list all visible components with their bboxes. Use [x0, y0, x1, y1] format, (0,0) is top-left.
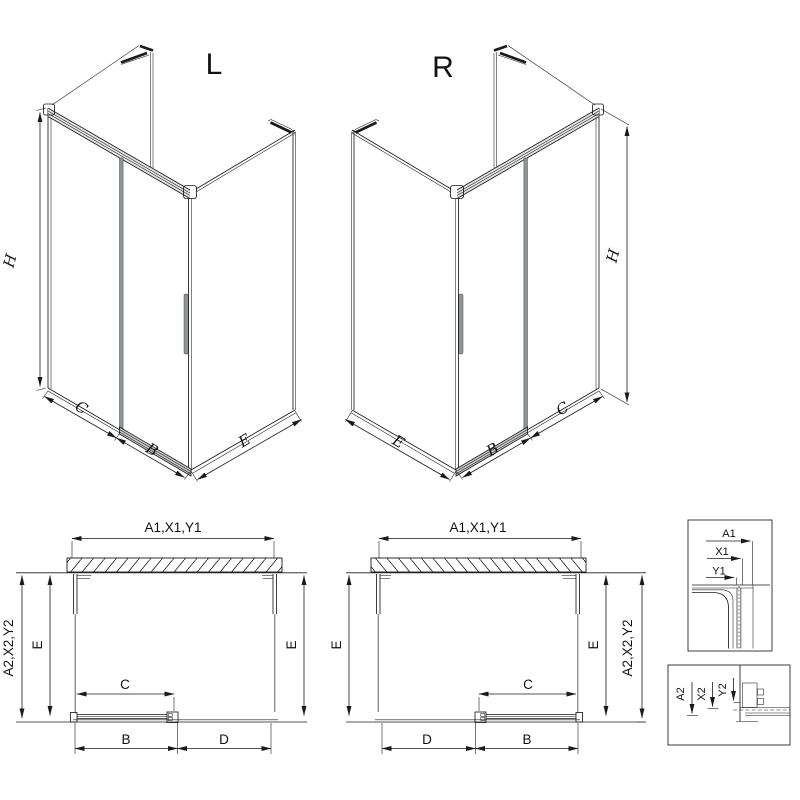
detail-label-a2: A2 — [675, 687, 687, 700]
plan-view-right: A1,X1,Y1 E E A2,X2,Y2 C D B — [329, 520, 646, 754]
plan-left-dim-a2: A2,X2,Y2 — [1, 576, 22, 719]
dim-label-h: H — [0, 251, 21, 270]
dim-label-c: C — [72, 397, 91, 419]
dim-label-e: E — [30, 640, 45, 649]
dim-label-d: D — [219, 732, 229, 747]
dim-label-a1x1y1: A1,X1,Y1 — [449, 520, 506, 535]
plan-left-dim-a1: A1,X1,Y1 — [72, 520, 274, 558]
plan-left-dim-b-d: B D — [75, 723, 271, 754]
plan-left-dim-e-right: E — [284, 576, 304, 716]
iso-view-right: R H E B C — [346, 46, 630, 482]
dim-label-b: B — [522, 732, 531, 747]
plan-right-dim-e-right: E — [586, 576, 606, 716]
detail-label-a1: A1 — [722, 528, 735, 540]
iso-right-h-dimension: H — [601, 109, 629, 405]
iso-view-left: L H C B E — [0, 46, 301, 482]
plan-right-dim-a1: A1,X1,Y1 — [379, 520, 581, 558]
dim-label-e: E — [586, 640, 601, 649]
dim-label-c: C — [120, 677, 130, 692]
dim-label-b: B — [121, 732, 130, 747]
dim-label-a2x2y2: A2,X2,Y2 — [620, 619, 635, 676]
dim-label-a2x2y2: A2,X2,Y2 — [1, 619, 16, 676]
plan-left-dim-c: C — [77, 677, 174, 711]
technical-drawing-canvas: L H C B E R H E B C A1,X1,Y1 — [0, 0, 800, 800]
dim-label-d: D — [422, 732, 432, 747]
dim-label-c: C — [523, 677, 533, 692]
dim-label-a1x1y1: A1,X1,Y1 — [144, 520, 201, 535]
plan-left-dim-e-left: E — [30, 576, 50, 716]
dim-label-e: E — [329, 640, 344, 649]
detail-box-bottom: A2 X2 Y2 — [668, 665, 790, 745]
plan-right-dim-a2: A2,X2,Y2 — [620, 576, 642, 719]
plan-view-left: A1,X1,Y1 A2,X2,Y2 E E C B D — [1, 520, 307, 754]
plan-right-dim-c: C — [479, 677, 576, 711]
dim-label-e: E — [388, 431, 407, 453]
detail-top-profile — [692, 585, 770, 649]
detail-label-x1: X1 — [715, 546, 728, 558]
detail-label-x2: X2 — [696, 687, 708, 700]
detail-bottom-rail — [733, 683, 790, 722]
detail-box-top: A1 X1 Y1 — [688, 520, 772, 651]
detail-label-y1: Y1 — [712, 566, 725, 578]
variant-label-right: R — [432, 51, 454, 84]
variant-label-left: L — [206, 48, 223, 81]
plan-right-dim-d-b: D B — [382, 723, 578, 754]
iso-left-h-dimension: H — [0, 108, 46, 391]
detail-label-y2: Y2 — [717, 683, 729, 696]
plan-right-dim-e-left: E — [329, 576, 349, 716]
dim-label-h: H — [603, 246, 624, 265]
dim-label-e: E — [284, 640, 299, 649]
